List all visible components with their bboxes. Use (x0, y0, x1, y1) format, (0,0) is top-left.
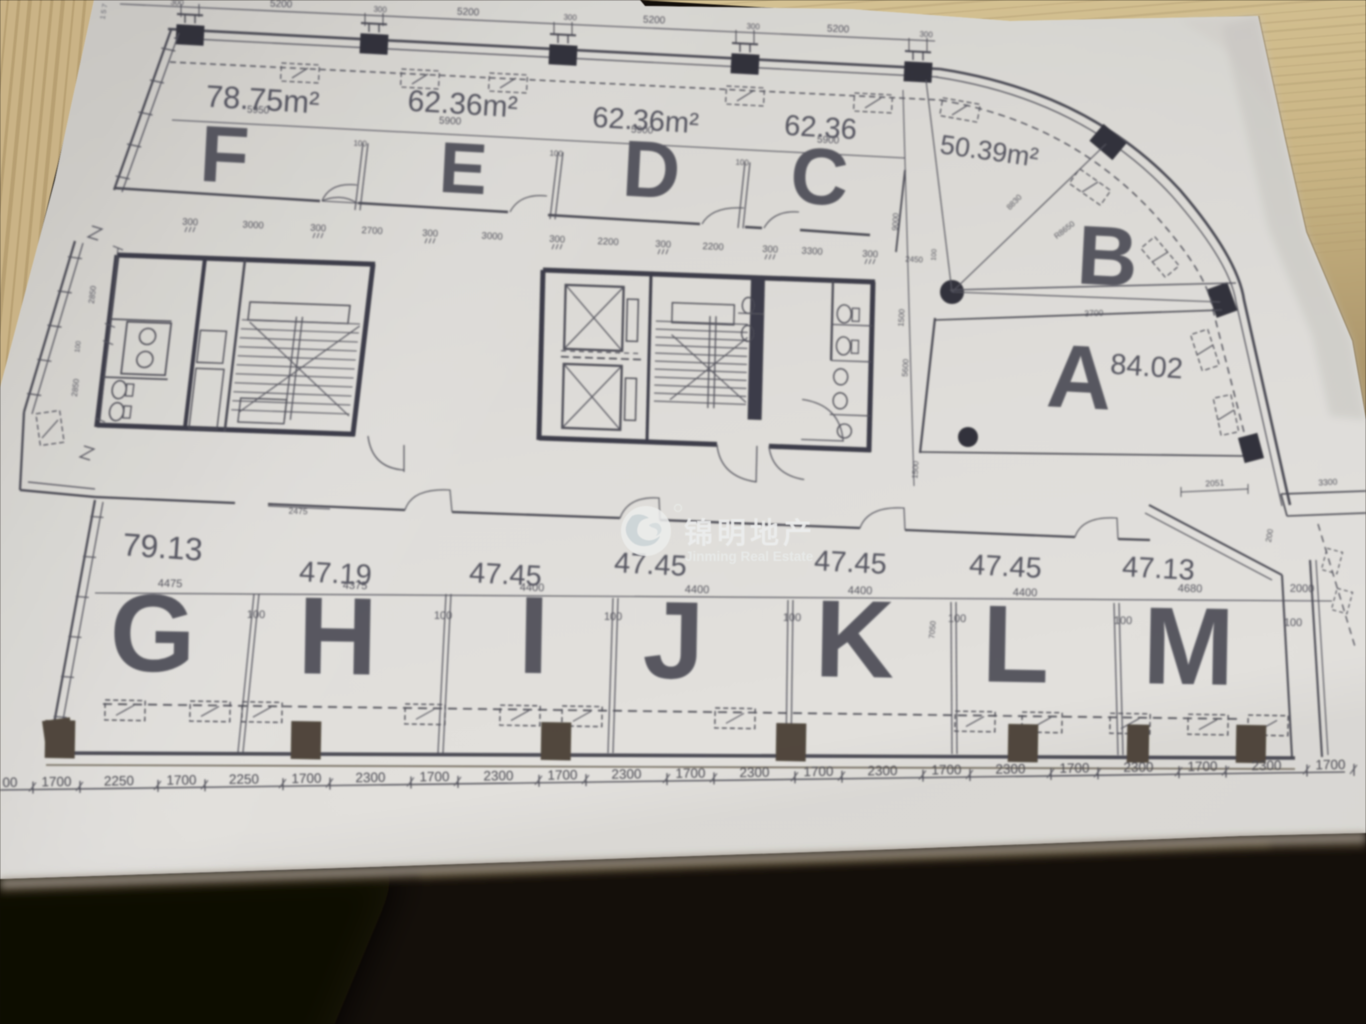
svg-text:2250: 2250 (229, 771, 259, 786)
svg-text:100: 100 (549, 149, 563, 159)
svg-text:1700: 1700 (41, 774, 71, 789)
svg-text:2300: 2300 (355, 770, 385, 785)
svg-text:300: 300 (310, 223, 326, 235)
svg-text:1700: 1700 (166, 772, 196, 787)
svg-text:9000: 9000 (890, 212, 900, 231)
svg-text:00: 00 (2, 775, 17, 790)
svg-text:2200: 2200 (702, 241, 724, 253)
svg-text:300: 300 (919, 30, 933, 40)
svg-text:2300: 2300 (1123, 759, 1153, 774)
svg-text:100: 100 (931, 249, 939, 261)
svg-text:300: 300 (170, 0, 184, 7)
svg-text:B: B (1075, 208, 1141, 305)
svg-text:300: 300 (655, 239, 671, 251)
svg-text:Jinming Real Estate: Jinming Real Estate (685, 549, 814, 564)
svg-text:2300: 2300 (611, 766, 641, 781)
svg-text:H: H (297, 574, 379, 698)
svg-text:300: 300 (746, 22, 760, 32)
svg-text:2300: 2300 (995, 761, 1025, 776)
svg-text:2450: 2450 (905, 255, 924, 265)
svg-text:3000: 3000 (481, 231, 503, 243)
svg-text:300: 300 (549, 234, 565, 246)
svg-text:2200: 2200 (597, 236, 619, 248)
svg-text:C: C (788, 131, 850, 223)
svg-text:100: 100 (783, 612, 802, 624)
svg-text:3300: 3300 (1318, 477, 1338, 488)
svg-text:5200: 5200 (827, 23, 850, 35)
svg-text:47.45: 47.45 (813, 545, 887, 581)
svg-text:300: 300 (862, 249, 878, 261)
svg-text:62.36m²: 62.36m² (407, 85, 519, 125)
svg-text:100: 100 (74, 340, 82, 353)
svg-text:1700: 1700 (1059, 760, 1089, 775)
svg-text:1700: 1700 (1187, 759, 1217, 774)
svg-text:2250: 2250 (104, 773, 134, 788)
svg-text:100: 100 (353, 139, 367, 149)
svg-text:G: G (109, 571, 197, 695)
svg-text:7050: 7050 (927, 620, 938, 639)
svg-text:2300: 2300 (1251, 758, 1281, 773)
svg-text:1500: 1500 (910, 460, 920, 479)
svg-text:E: E (437, 128, 489, 210)
svg-text:1700: 1700 (1315, 757, 1345, 772)
svg-text:3300: 3300 (801, 246, 823, 258)
svg-text:2300: 2300 (483, 768, 513, 783)
svg-text:100: 100 (1284, 617, 1303, 629)
svg-text:2700: 2700 (361, 225, 383, 237)
svg-text:D: D (620, 124, 682, 216)
svg-text:300: 300 (563, 13, 577, 23)
svg-text:1700: 1700 (419, 769, 449, 784)
svg-text:F: F (198, 109, 251, 200)
svg-text:M: M (1142, 584, 1236, 709)
svg-text:300: 300 (762, 244, 778, 256)
svg-text:5600: 5600 (900, 358, 910, 377)
svg-text:1700: 1700 (675, 765, 705, 780)
svg-text:J: J (642, 578, 705, 702)
svg-text:300: 300 (373, 5, 387, 15)
svg-text:2051: 2051 (1205, 478, 1225, 489)
svg-text:5200: 5200 (457, 6, 480, 18)
svg-text:3000: 3000 (242, 219, 264, 231)
svg-text:A: A (1044, 326, 1114, 429)
svg-text:1700: 1700 (291, 771, 321, 786)
svg-text:2300: 2300 (739, 765, 769, 780)
svg-text:100: 100 (1114, 615, 1133, 627)
svg-text:100: 100 (735, 158, 749, 168)
svg-text:K: K (814, 577, 896, 701)
svg-text:79.13: 79.13 (122, 526, 204, 567)
svg-text:L: L (981, 582, 1050, 706)
svg-text:1700: 1700 (803, 764, 833, 779)
svg-text:1500: 1500 (896, 308, 906, 327)
svg-text:5200: 5200 (270, 0, 293, 11)
svg-text:3700: 3700 (1084, 308, 1104, 319)
svg-text:300: 300 (422, 228, 438, 240)
svg-text:2000: 2000 (1290, 583, 1315, 595)
svg-text:47.45: 47.45 (968, 549, 1042, 585)
svg-text:锦明地产: 锦明地产 (684, 517, 816, 550)
svg-text:5200: 5200 (643, 14, 666, 26)
svg-text:2300: 2300 (867, 763, 897, 778)
svg-text:I: I (517, 574, 550, 698)
svg-text:1700: 1700 (547, 767, 577, 782)
svg-text:47.13: 47.13 (1121, 551, 1195, 587)
svg-text:300: 300 (182, 217, 198, 229)
svg-text:84.02: 84.02 (1109, 349, 1184, 386)
svg-text:1700: 1700 (931, 762, 961, 777)
